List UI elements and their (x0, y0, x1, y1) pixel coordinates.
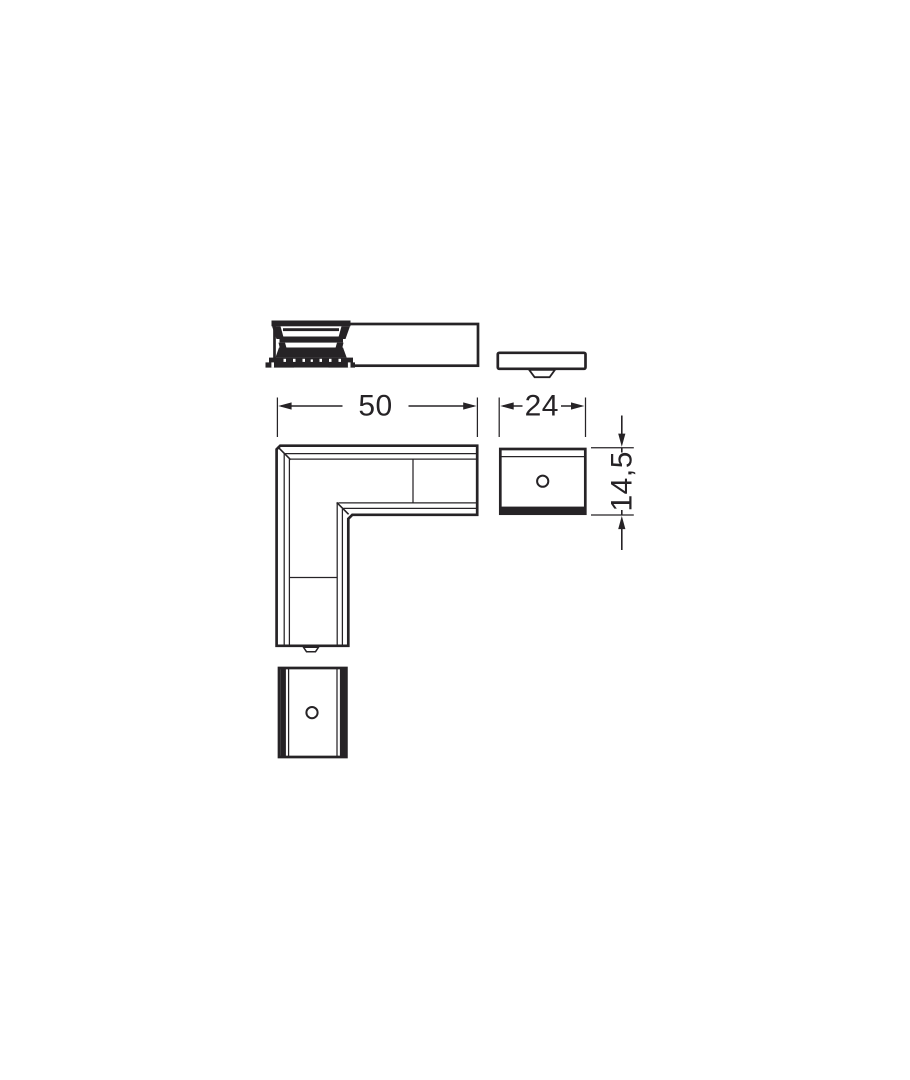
end-cap-side-view (500, 449, 586, 514)
dimension-height-label: 14,5 (605, 451, 638, 511)
left-flange-band (280, 669, 286, 756)
side-view-outline (500, 449, 585, 514)
screw-hole (537, 476, 548, 487)
dimension-depth: 24 (499, 390, 585, 438)
dimension-depth-label: 24 (525, 390, 559, 423)
arrowhead-right-icon (571, 402, 584, 409)
front-view-horizontal-arm (266, 321, 479, 379)
end-cap-bottom-tab (529, 370, 555, 377)
end-cap-outline (498, 353, 586, 369)
page: 50 24 (0, 0, 910, 1080)
dimension-height: 14,5 (591, 416, 638, 551)
clip-bottom-tab (294, 368, 329, 379)
arrowhead-left-icon (500, 402, 513, 409)
bottom-flange-band (501, 507, 585, 514)
spring-clip-cross-section (266, 321, 356, 379)
bottom-end-tab (304, 647, 319, 651)
arrowhead-up-icon (618, 516, 625, 529)
technical-drawing-canvas: 50 24 (0, 0, 910, 1080)
arrowhead-right-icon (463, 402, 476, 409)
right-flange-band (340, 669, 346, 756)
end-cap-bottom-view (279, 668, 346, 757)
arrowhead-left-icon (278, 402, 291, 409)
corner-connector-main-view (277, 446, 478, 652)
screw-hole (306, 707, 317, 718)
end-cap-front-view (498, 353, 586, 377)
l-profile-outer-outline (277, 446, 478, 646)
dimension-width-label: 50 (358, 390, 392, 423)
arrowhead-down-icon (618, 434, 625, 447)
dimension-width: 50 (277, 390, 477, 438)
